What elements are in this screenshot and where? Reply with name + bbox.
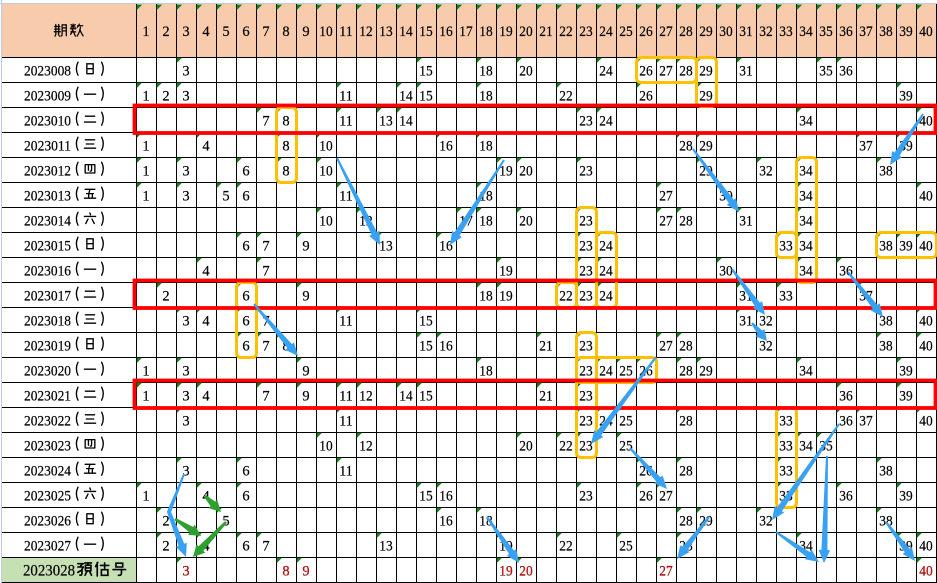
- svg-text:26: 26: [639, 24, 652, 40]
- svg-text:24: 24: [599, 263, 613, 279]
- svg-text:13: 13: [379, 238, 392, 254]
- svg-text:13: 13: [379, 113, 392, 129]
- svg-text:3: 3: [182, 313, 189, 329]
- svg-text:1: 1: [142, 488, 149, 504]
- svg-text:36: 36: [839, 488, 852, 504]
- svg-text:2023022: 2023022: [24, 413, 71, 429]
- svg-text:9: 9: [302, 24, 309, 40]
- svg-text:10: 10: [319, 24, 332, 40]
- svg-text:4: 4: [202, 24, 210, 40]
- svg-text:10: 10: [319, 213, 332, 229]
- svg-text:18: 18: [479, 88, 492, 104]
- svg-text:12: 12: [359, 388, 372, 404]
- svg-text:33: 33: [779, 413, 792, 429]
- svg-text:27: 27: [659, 213, 672, 229]
- svg-text:29: 29: [699, 88, 712, 104]
- svg-text:40: 40: [919, 338, 932, 354]
- svg-text:9: 9: [302, 388, 309, 404]
- svg-text:3: 3: [182, 163, 189, 179]
- svg-text:27: 27: [659, 563, 672, 579]
- svg-text:2023011: 2023011: [24, 138, 71, 154]
- svg-text:27: 27: [659, 338, 672, 354]
- svg-text:8: 8: [282, 138, 289, 154]
- svg-text:2: 2: [162, 288, 169, 304]
- svg-text:29: 29: [699, 24, 712, 40]
- svg-text:18: 18: [479, 138, 492, 154]
- svg-text:2023020: 2023020: [24, 363, 71, 379]
- svg-text:31: 31: [739, 213, 752, 229]
- svg-text:15: 15: [419, 488, 432, 504]
- svg-text:15: 15: [419, 63, 432, 79]
- svg-text:2: 2: [162, 24, 169, 40]
- svg-text:11: 11: [339, 413, 352, 429]
- svg-text:6: 6: [242, 488, 249, 504]
- svg-text:36: 36: [839, 63, 852, 79]
- svg-text:7: 7: [262, 113, 269, 129]
- svg-text:15: 15: [419, 24, 432, 40]
- svg-text:33: 33: [779, 24, 792, 40]
- svg-text:23: 23: [579, 338, 592, 354]
- svg-text:2023010: 2023010: [24, 113, 71, 129]
- svg-text:16: 16: [439, 138, 452, 154]
- svg-text:19: 19: [499, 563, 512, 579]
- svg-text:18: 18: [479, 363, 492, 379]
- svg-text:23: 23: [579, 213, 592, 229]
- svg-text:29: 29: [699, 363, 712, 379]
- svg-text:28: 28: [679, 63, 692, 79]
- svg-text:1: 1: [142, 88, 149, 104]
- svg-text:3: 3: [182, 188, 189, 204]
- svg-text:27: 27: [659, 488, 672, 504]
- svg-text:15: 15: [419, 313, 432, 329]
- svg-text:39: 39: [899, 363, 912, 379]
- svg-text:14: 14: [399, 113, 413, 129]
- svg-text:28: 28: [679, 138, 692, 154]
- svg-text:18: 18: [479, 63, 492, 79]
- svg-text:40: 40: [919, 313, 932, 329]
- svg-text:9: 9: [302, 238, 309, 254]
- svg-text:1: 1: [142, 188, 149, 204]
- svg-text:20: 20: [519, 24, 532, 40]
- svg-text:17: 17: [459, 24, 472, 40]
- svg-text:29: 29: [699, 63, 712, 79]
- svg-text:6: 6: [242, 24, 249, 40]
- svg-text:1: 1: [142, 388, 149, 404]
- svg-text:9: 9: [302, 563, 309, 579]
- svg-text:2023017: 2023017: [24, 288, 71, 304]
- svg-text:39: 39: [899, 24, 912, 40]
- svg-text:32: 32: [759, 338, 772, 354]
- svg-text:2023008: 2023008: [24, 63, 71, 79]
- svg-text:7: 7: [262, 24, 269, 40]
- svg-text:35: 35: [819, 63, 832, 79]
- svg-text:11: 11: [339, 313, 352, 329]
- svg-text:23: 23: [579, 488, 592, 504]
- svg-text:23: 23: [579, 363, 592, 379]
- svg-text:34: 34: [799, 213, 813, 229]
- svg-text:34: 34: [799, 24, 813, 40]
- svg-text:19: 19: [499, 24, 512, 40]
- svg-text:24: 24: [599, 288, 613, 304]
- svg-text:9: 9: [302, 363, 309, 379]
- svg-text:33: 33: [779, 463, 792, 479]
- svg-text:2023014: 2023014: [24, 213, 72, 229]
- svg-text:23: 23: [579, 263, 592, 279]
- svg-text:2: 2: [162, 538, 169, 554]
- svg-text:36: 36: [839, 413, 852, 429]
- svg-text:32: 32: [759, 163, 772, 179]
- svg-text:40: 40: [919, 24, 932, 40]
- svg-text:24: 24: [599, 63, 613, 79]
- svg-text:38: 38: [879, 163, 892, 179]
- svg-text:28: 28: [679, 463, 692, 479]
- svg-text:15: 15: [419, 88, 432, 104]
- svg-text:31: 31: [739, 63, 752, 79]
- svg-text:40: 40: [919, 563, 932, 579]
- svg-text:2023021: 2023021: [24, 388, 71, 404]
- svg-text:11: 11: [339, 24, 352, 40]
- svg-text:24: 24: [599, 113, 613, 129]
- svg-text:28: 28: [679, 24, 692, 40]
- svg-text:25: 25: [619, 413, 632, 429]
- svg-text:4: 4: [202, 388, 210, 404]
- svg-text:11: 11: [339, 463, 352, 479]
- svg-text:25: 25: [619, 24, 632, 40]
- svg-text:23: 23: [579, 388, 592, 404]
- svg-text:34: 34: [799, 363, 813, 379]
- svg-text:2023024: 2023024: [24, 463, 72, 479]
- svg-text:8: 8: [282, 163, 289, 179]
- svg-text:32: 32: [759, 24, 772, 40]
- svg-text:5: 5: [222, 24, 229, 40]
- svg-text:8: 8: [282, 113, 289, 129]
- svg-text:18: 18: [479, 288, 492, 304]
- svg-text:23: 23: [579, 24, 592, 40]
- svg-text:21: 21: [539, 24, 552, 40]
- svg-text:28: 28: [679, 513, 692, 529]
- svg-text:25: 25: [619, 538, 632, 554]
- svg-text:30: 30: [719, 263, 732, 279]
- svg-text:4: 4: [202, 313, 210, 329]
- svg-text:34: 34: [799, 438, 813, 454]
- svg-text:21: 21: [539, 388, 552, 404]
- svg-text:11: 11: [339, 113, 352, 129]
- svg-text:2023028: 2023028: [23, 562, 75, 579]
- svg-text:39: 39: [899, 388, 912, 404]
- svg-text:2023009: 2023009: [24, 88, 71, 104]
- svg-text:2023027: 2023027: [24, 538, 71, 554]
- svg-text:27: 27: [659, 188, 672, 204]
- svg-text:15: 15: [419, 388, 432, 404]
- svg-text:2023016: 2023016: [24, 263, 71, 279]
- svg-text:7: 7: [262, 238, 269, 254]
- svg-text:37: 37: [859, 138, 872, 154]
- svg-text:2023013: 2023013: [24, 188, 71, 204]
- svg-text:24: 24: [599, 24, 613, 40]
- svg-text:40: 40: [919, 538, 932, 554]
- svg-text:16: 16: [439, 513, 452, 529]
- svg-text:3: 3: [182, 363, 189, 379]
- svg-text:16: 16: [439, 488, 452, 504]
- svg-text:12: 12: [359, 24, 372, 40]
- svg-text:18: 18: [479, 213, 492, 229]
- svg-text:39: 39: [899, 238, 912, 254]
- svg-text:34: 34: [799, 188, 813, 204]
- svg-text:38: 38: [879, 24, 892, 40]
- svg-text:33: 33: [779, 238, 792, 254]
- svg-text:22: 22: [559, 24, 572, 40]
- svg-text:30: 30: [719, 24, 732, 40]
- svg-text:22: 22: [559, 538, 572, 554]
- svg-text:39: 39: [899, 88, 912, 104]
- svg-text:7: 7: [262, 338, 269, 354]
- svg-text:6: 6: [242, 538, 249, 554]
- svg-text:31: 31: [739, 24, 752, 40]
- svg-text:11: 11: [339, 188, 352, 204]
- svg-text:3: 3: [182, 413, 189, 429]
- svg-text:25: 25: [619, 363, 632, 379]
- svg-text:8: 8: [282, 24, 289, 40]
- svg-text:22: 22: [559, 438, 572, 454]
- svg-text:1: 1: [142, 138, 149, 154]
- svg-text:2023018: 2023018: [24, 313, 71, 329]
- svg-text:29: 29: [699, 138, 712, 154]
- svg-text:15: 15: [419, 338, 432, 354]
- svg-text:6: 6: [242, 163, 249, 179]
- svg-text:36: 36: [839, 24, 852, 40]
- svg-text:32: 32: [759, 513, 772, 529]
- svg-text:34: 34: [799, 113, 813, 129]
- svg-text:23: 23: [579, 288, 592, 304]
- svg-text:9: 9: [302, 288, 309, 304]
- svg-text:24: 24: [599, 363, 613, 379]
- svg-text:23: 23: [579, 163, 592, 179]
- svg-text:16: 16: [439, 24, 452, 40]
- svg-text:6: 6: [242, 238, 249, 254]
- svg-text:2023015: 2023015: [24, 238, 71, 254]
- svg-text:23: 23: [579, 438, 592, 454]
- svg-text:20: 20: [519, 213, 532, 229]
- svg-text:2: 2: [162, 88, 169, 104]
- svg-text:7: 7: [262, 263, 269, 279]
- svg-text:38: 38: [879, 238, 892, 254]
- svg-text:2023012: 2023012: [24, 163, 71, 179]
- svg-text:40: 40: [919, 413, 932, 429]
- svg-text:10: 10: [319, 163, 332, 179]
- svg-text:36: 36: [839, 388, 852, 404]
- svg-text:34: 34: [799, 163, 813, 179]
- svg-text:2023025: 2023025: [24, 488, 71, 504]
- svg-text:34: 34: [799, 263, 813, 279]
- svg-text:13: 13: [379, 538, 392, 554]
- svg-text:14: 14: [399, 388, 413, 404]
- svg-text:6: 6: [242, 463, 249, 479]
- svg-text:3: 3: [182, 24, 189, 40]
- svg-text:34: 34: [799, 238, 813, 254]
- svg-text:23: 23: [579, 413, 592, 429]
- svg-text:38: 38: [879, 463, 892, 479]
- svg-text:19: 19: [499, 263, 512, 279]
- svg-text:7: 7: [262, 388, 269, 404]
- svg-text:11: 11: [339, 88, 352, 104]
- svg-text:3: 3: [182, 388, 189, 404]
- svg-text:10: 10: [319, 438, 332, 454]
- svg-text:33: 33: [779, 288, 792, 304]
- svg-text:3: 3: [182, 63, 189, 79]
- svg-text:33: 33: [779, 438, 792, 454]
- svg-text:27: 27: [659, 24, 672, 40]
- svg-text:7: 7: [262, 538, 269, 554]
- svg-text:6: 6: [242, 338, 249, 354]
- svg-text:38: 38: [879, 338, 892, 354]
- svg-text:22: 22: [559, 288, 572, 304]
- svg-text:8: 8: [282, 563, 289, 579]
- svg-text:6: 6: [242, 288, 249, 304]
- svg-text:26: 26: [639, 88, 652, 104]
- svg-text:19: 19: [499, 288, 512, 304]
- svg-text:31: 31: [739, 313, 752, 329]
- svg-text:40: 40: [919, 238, 932, 254]
- svg-text:28: 28: [679, 338, 692, 354]
- svg-text:37: 37: [859, 413, 872, 429]
- svg-text:2023023: 2023023: [24, 438, 71, 454]
- svg-text:20: 20: [519, 563, 532, 579]
- svg-text:11: 11: [339, 388, 352, 404]
- svg-text:1: 1: [142, 24, 149, 40]
- svg-text:20: 20: [519, 163, 532, 179]
- svg-text:5: 5: [222, 188, 229, 204]
- svg-text:12: 12: [359, 438, 372, 454]
- svg-text:27: 27: [659, 63, 672, 79]
- svg-text:23: 23: [579, 113, 592, 129]
- svg-text:20: 20: [519, 438, 532, 454]
- svg-text:4: 4: [202, 138, 210, 154]
- svg-text:6: 6: [242, 188, 249, 204]
- svg-text:28: 28: [679, 363, 692, 379]
- svg-text:40: 40: [919, 188, 932, 204]
- svg-text:39: 39: [899, 488, 912, 504]
- svg-text:22: 22: [559, 88, 572, 104]
- svg-text:13: 13: [379, 24, 392, 40]
- svg-text:24: 24: [599, 238, 613, 254]
- svg-text:4: 4: [202, 263, 210, 279]
- svg-text:35: 35: [819, 24, 832, 40]
- svg-text:6: 6: [242, 313, 249, 329]
- svg-text:25: 25: [619, 438, 632, 454]
- svg-text:26: 26: [639, 488, 652, 504]
- svg-text:1: 1: [142, 163, 149, 179]
- svg-text:3: 3: [182, 88, 189, 104]
- svg-text:32: 32: [759, 313, 772, 329]
- svg-text:3: 3: [182, 563, 189, 579]
- svg-text:14: 14: [399, 88, 413, 104]
- svg-text:2023019: 2023019: [24, 338, 71, 354]
- svg-text:14: 14: [399, 24, 413, 40]
- svg-text:26: 26: [639, 63, 652, 79]
- svg-text:16: 16: [439, 338, 452, 354]
- svg-text:1: 1: [142, 363, 149, 379]
- svg-text:28: 28: [679, 413, 692, 429]
- svg-text:10: 10: [319, 138, 332, 154]
- svg-text:23: 23: [579, 238, 592, 254]
- svg-text:20: 20: [519, 63, 532, 79]
- svg-text:18: 18: [479, 24, 492, 40]
- svg-text:2023026: 2023026: [24, 513, 71, 529]
- svg-text:21: 21: [539, 338, 552, 354]
- svg-text:28: 28: [679, 213, 692, 229]
- svg-text:37: 37: [859, 24, 872, 40]
